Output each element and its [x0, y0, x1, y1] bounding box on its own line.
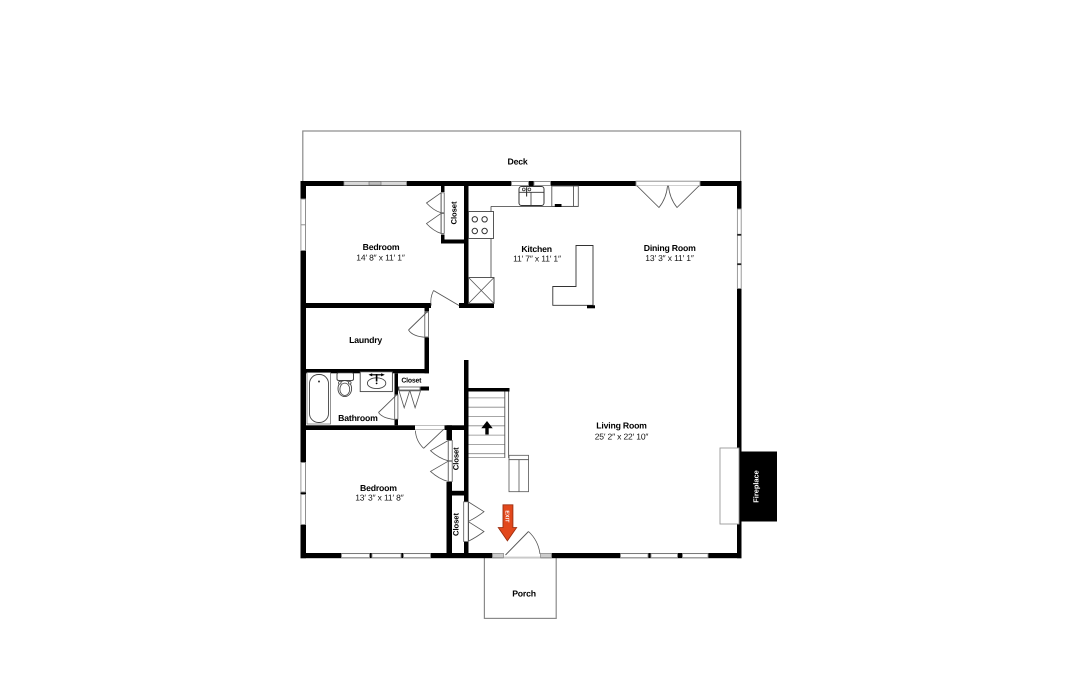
svg-text:Porch: Porch: [512, 589, 536, 599]
svg-text:Living Room: Living Room: [596, 421, 647, 431]
svg-text:Closet: Closet: [450, 201, 459, 224]
svg-text:EXIT: EXIT: [504, 510, 510, 523]
svg-text:11′ 7″ x 11′ 1″: 11′ 7″ x 11′ 1″: [513, 254, 561, 264]
svg-text:Bedroom: Bedroom: [363, 242, 400, 252]
svg-text:Deck: Deck: [508, 157, 528, 167]
svg-text:Bedroom: Bedroom: [360, 483, 397, 493]
svg-text:Fireplace: Fireplace: [752, 470, 761, 502]
svg-text:Closet: Closet: [401, 378, 422, 385]
svg-text:13′ 3″ x 11′ 8″: 13′ 3″ x 11′ 8″: [355, 493, 404, 503]
svg-text:14′ 8″ x 11′ 1″: 14′ 8″ x 11′ 1″: [356, 253, 405, 263]
svg-text:Kitchen: Kitchen: [521, 244, 551, 254]
svg-text:Closet: Closet: [452, 513, 461, 536]
svg-text:Laundry: Laundry: [349, 335, 382, 345]
svg-text:Closet: Closet: [451, 447, 460, 470]
svg-text:Dining Room: Dining Room: [644, 243, 696, 253]
svg-text:13′ 3″ x 11′ 1″: 13′ 3″ x 11′ 1″: [645, 253, 694, 263]
svg-text:Bathroom: Bathroom: [338, 413, 378, 423]
svg-text:25′ 2″ x 22′ 10″: 25′ 2″ x 22′ 10″: [595, 432, 649, 442]
